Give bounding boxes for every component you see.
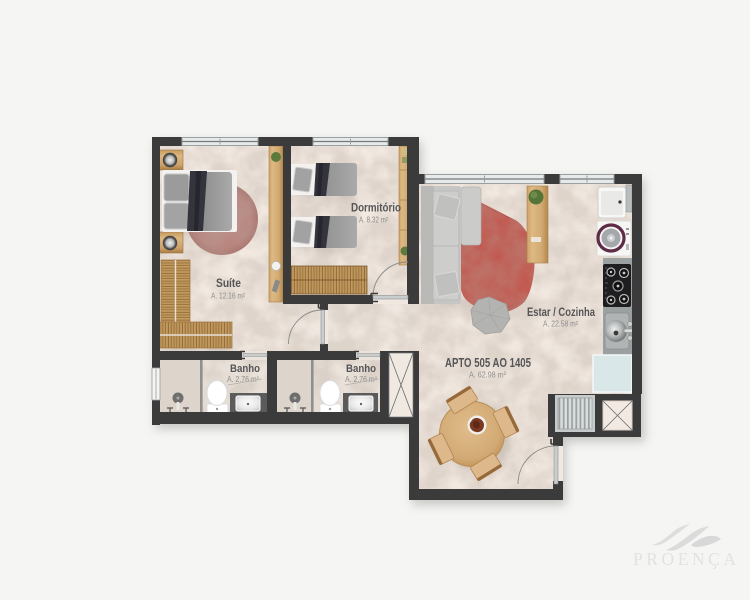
svg-text:A. 22.58 m²: A. 22.58 m² [543,319,578,329]
svg-text:A. 8.32 m²: A. 8.32 m² [359,215,388,225]
svg-text:Suíte: Suíte [216,278,241,290]
svg-text:A. 62.98 m²: A. 62.98 m² [469,370,506,380]
svg-text:Estar / Cozinha: Estar / Cozinha [527,307,595,319]
svg-text:A. 2.76 m²: A. 2.76 m² [345,375,377,384]
svg-text:A. 12.16 m²: A. 12.16 m² [211,291,245,301]
svg-text:Dormitório: Dormitório [351,203,401,215]
svg-text:Banho: Banho [346,363,376,375]
svg-text:Banho: Banho [230,363,260,375]
svg-text:APTO 505 AO 1405: APTO 505 AO 1405 [445,356,531,370]
